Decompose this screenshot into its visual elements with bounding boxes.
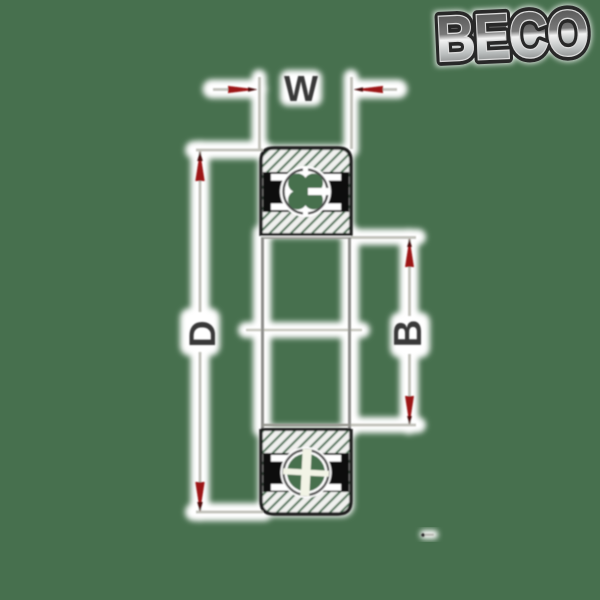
svg-text:B: B	[387, 320, 430, 348]
svg-text:W: W	[284, 68, 318, 109]
svg-text:BECO: BECO	[435, 0, 590, 75]
svg-text:D: D	[181, 320, 223, 347]
